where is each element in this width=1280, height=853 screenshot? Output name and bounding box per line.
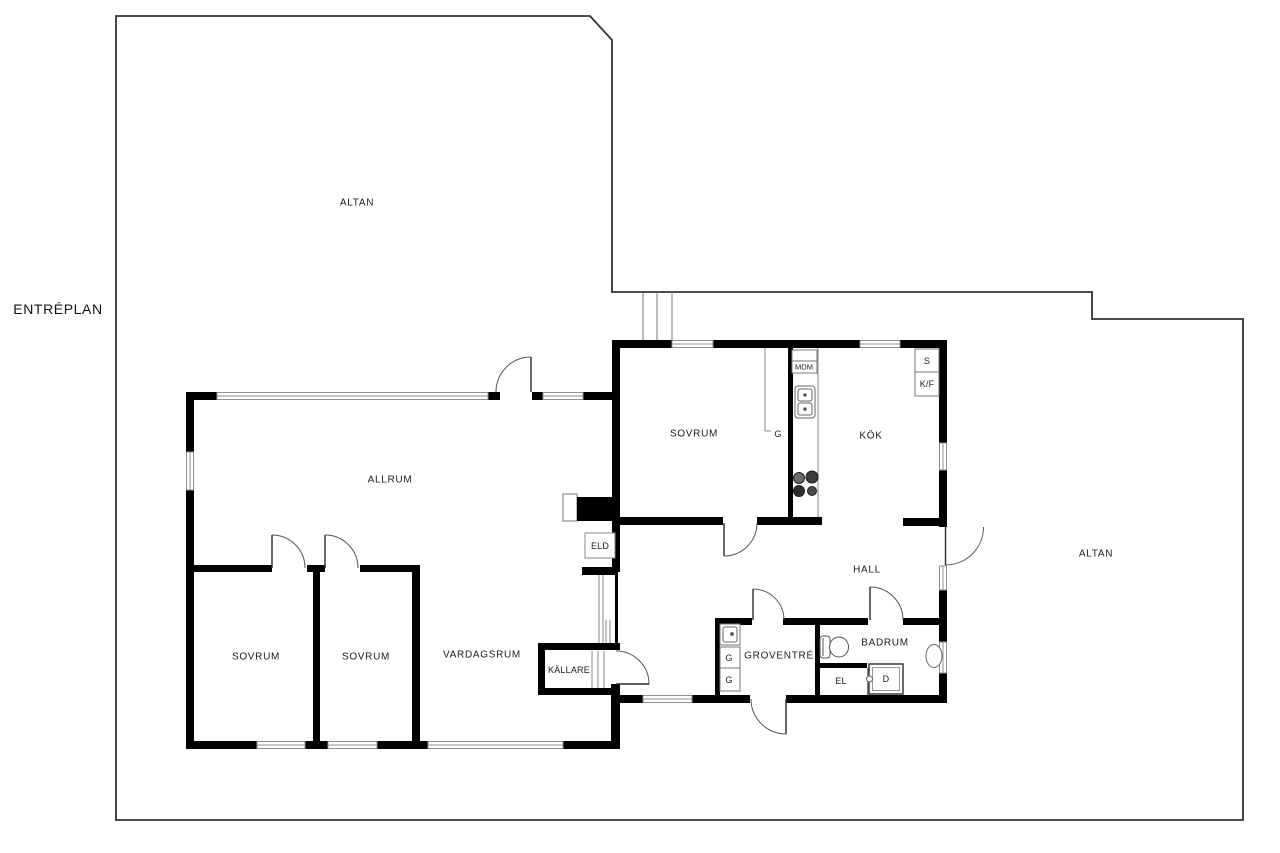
plan-title: ENTRÉPLAN: [13, 301, 102, 317]
floorplan-drawing: [0, 0, 1280, 853]
door-arc: [616, 651, 649, 684]
room-label-altan-east: ALTAN: [1079, 549, 1113, 560]
door-arc: [325, 535, 358, 568]
fixture-label-el: EL: [835, 676, 846, 686]
deck-steps-icon: [643, 292, 672, 340]
room-label-altan-nw: ALTAN: [340, 198, 374, 209]
floorplan-canvas: ENTRÉPLAN ALTAN ALTAN SOVRUM KÖK ALLRUM …: [0, 0, 1280, 853]
walls-layer: [186, 340, 947, 749]
fixture-label-kf: K/F: [920, 379, 935, 389]
door-arc: [751, 699, 786, 734]
room-label-allrum: ALLRUM: [368, 475, 413, 486]
window-icon: [940, 566, 947, 590]
room-label-hall: HALL: [853, 565, 881, 576]
door-arc: [946, 527, 984, 565]
fixture-label-g-sovrum: G: [774, 429, 781, 439]
room-label-sovrum-west: SOVRUM: [232, 652, 280, 663]
window-icon: [257, 742, 305, 749]
door-arc: [870, 587, 903, 620]
window-icon: [672, 341, 713, 348]
basement-stairs-icon: [592, 575, 610, 688]
room-label-badrum: BADRUM: [861, 638, 909, 649]
room-label-kok: KÖK: [859, 431, 882, 442]
fixture-label-g-groventre-1: G: [725, 653, 732, 663]
fixture-label-mdm: MDM: [795, 363, 813, 372]
fixture-label-g-groventre-2: G: [725, 675, 732, 685]
kitchen-counter: [792, 348, 818, 517]
window-icon: [940, 443, 947, 470]
kitchen-sink-icon: [795, 386, 815, 418]
door-arc: [496, 357, 531, 392]
room-label-kallare: KÄLLARE: [548, 665, 590, 675]
window-icon: [643, 696, 692, 703]
window-icon: [860, 341, 900, 348]
door-arc: [272, 535, 305, 568]
room-label-vardagsrum: VARDAGSRUM: [443, 650, 521, 661]
window-icon: [217, 393, 488, 400]
window-icon: [543, 393, 583, 400]
room-label-groventre: GROVENTRÉ: [744, 651, 814, 662]
door-arc: [724, 523, 757, 556]
wardrobe-line: [765, 348, 771, 431]
utility-sink-icon: [720, 624, 740, 645]
floor-drain-icon: [867, 676, 873, 682]
window-icon: [428, 742, 563, 749]
toilet-icon: [820, 636, 849, 658]
window-icon: [187, 452, 194, 490]
door-arc: [753, 589, 784, 620]
fixture-label-d: D: [883, 674, 890, 684]
window-icon: [328, 742, 377, 749]
fixture-label-eld: ELD: [591, 541, 609, 551]
stove-icon: [794, 471, 819, 497]
room-label-sovrum-north: SOVRUM: [670, 429, 718, 440]
windows-layer: [187, 341, 947, 749]
room-label-sovrum-mid: SOVRUM: [342, 652, 390, 663]
washbasin-icon: [926, 645, 942, 668]
fixture-label-s: S: [924, 356, 930, 366]
